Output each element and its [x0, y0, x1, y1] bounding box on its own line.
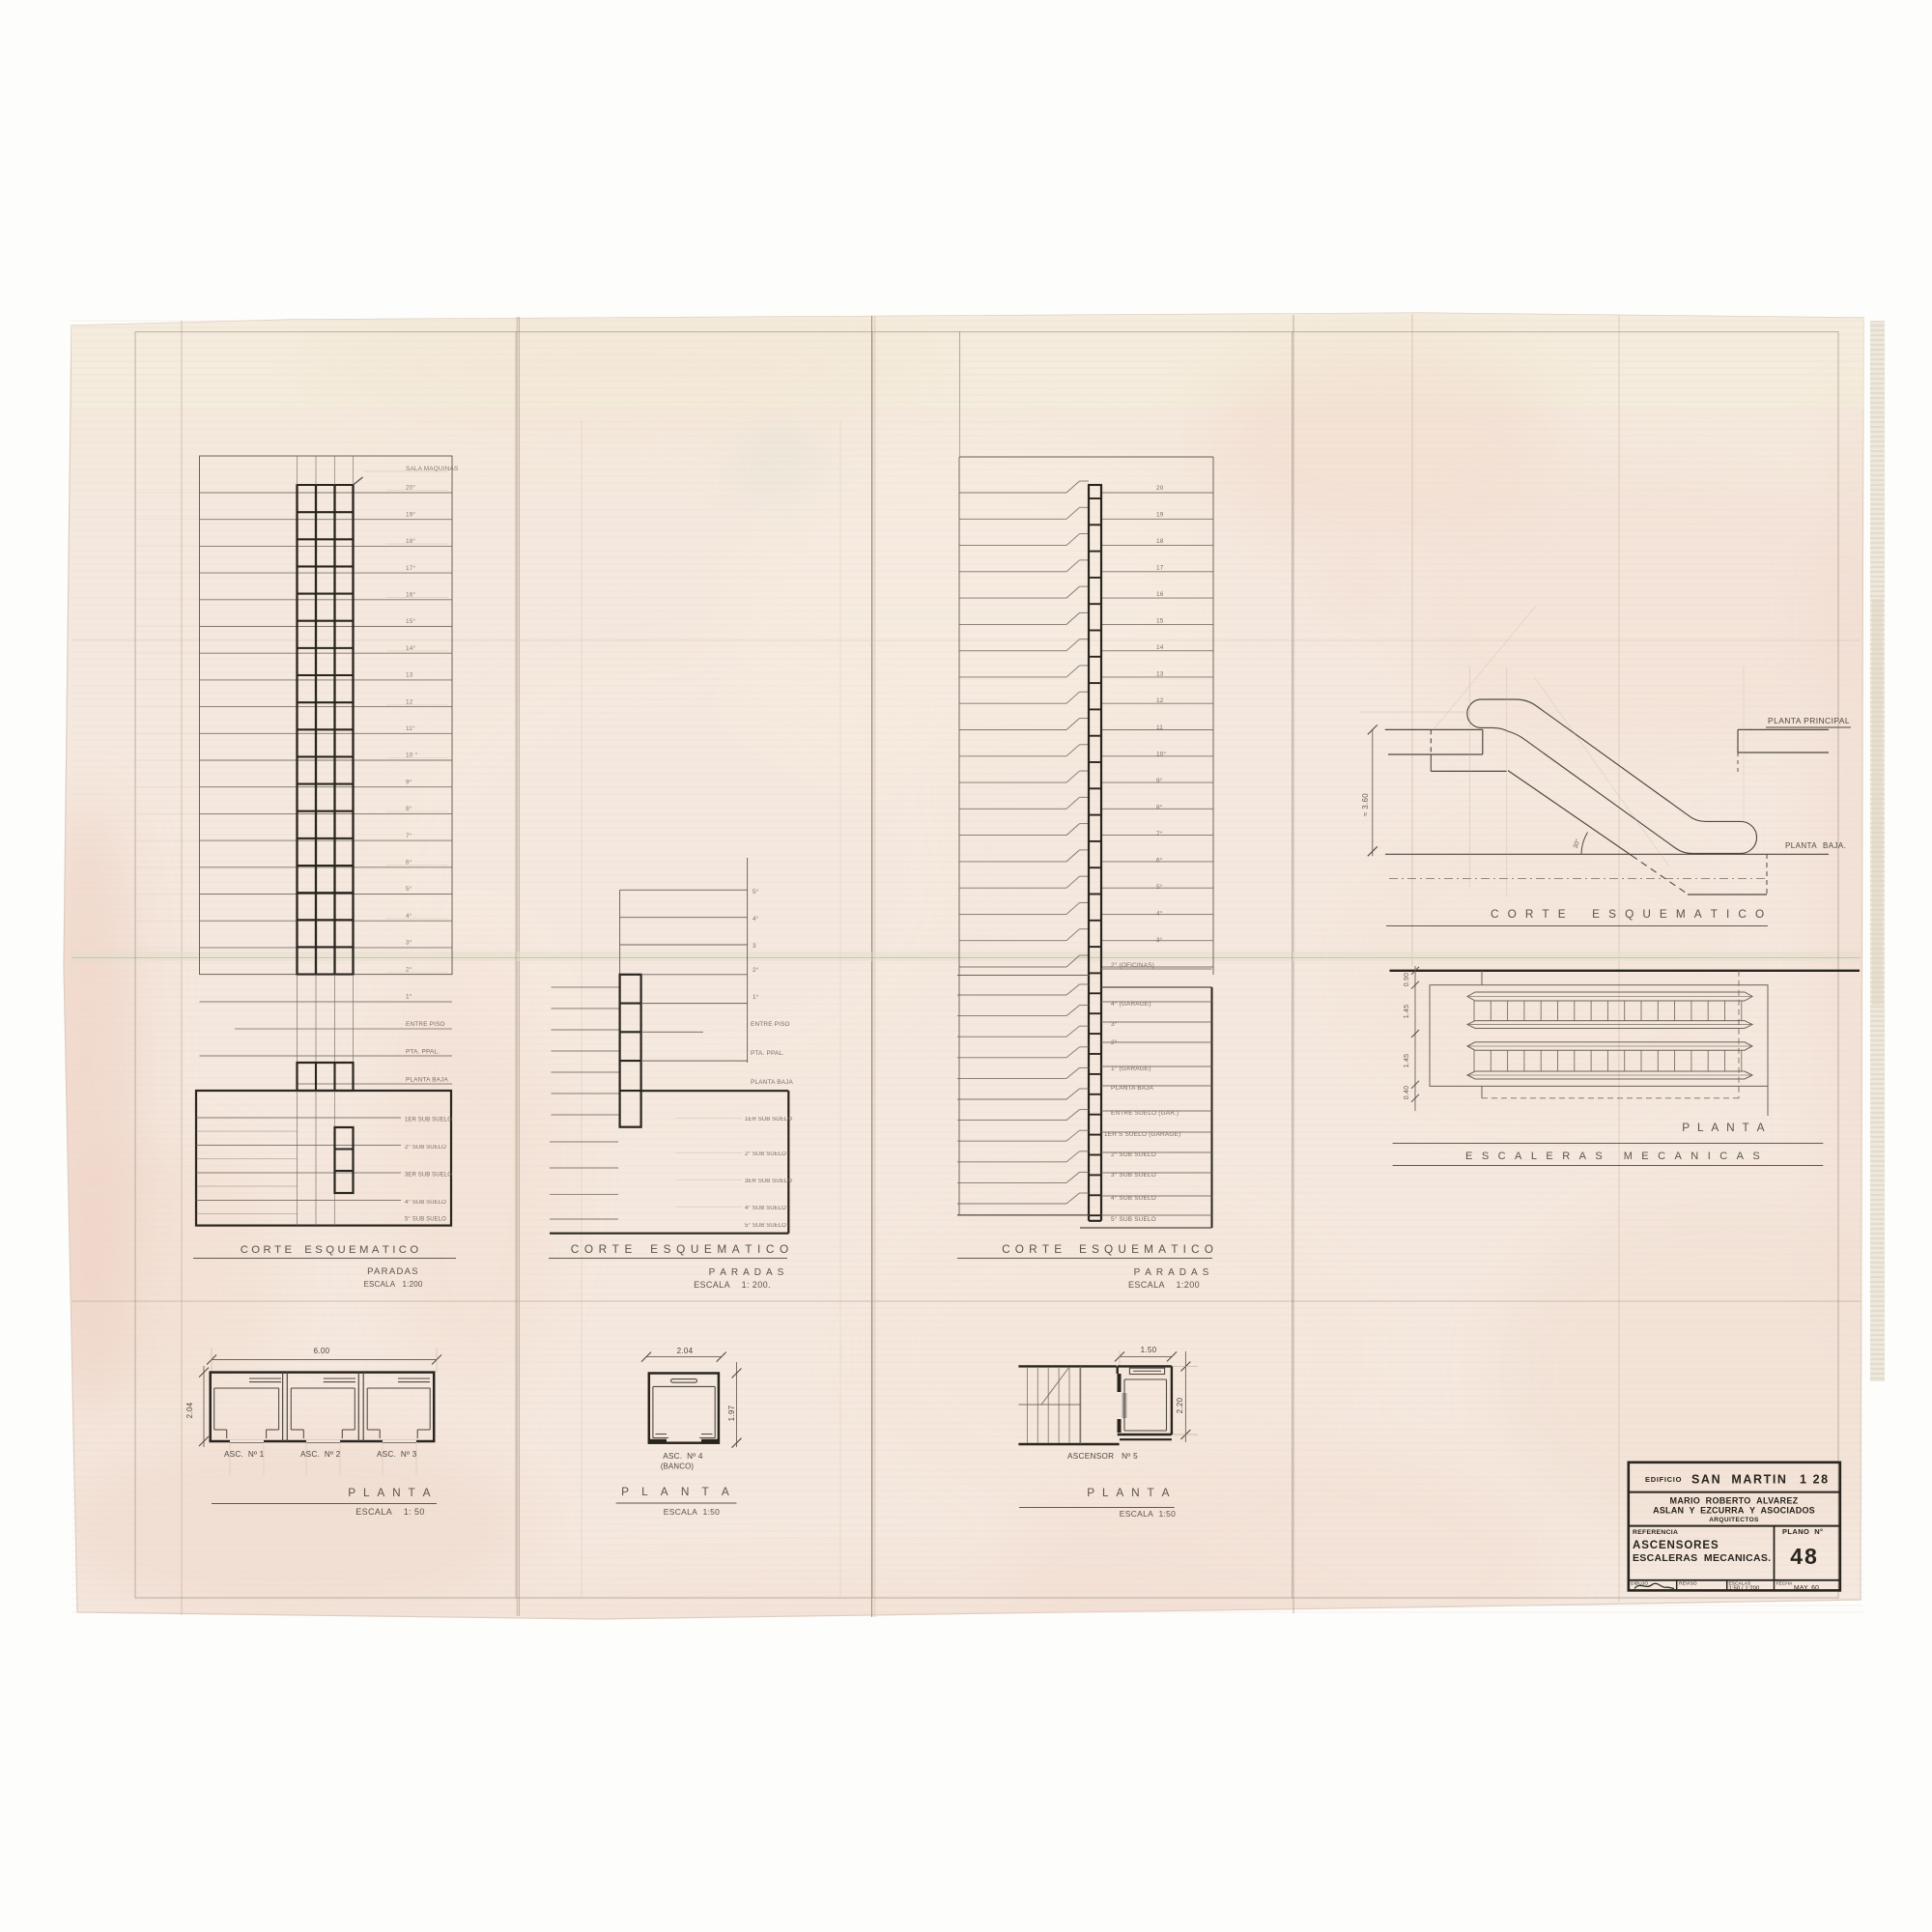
svg-text:13: 13: [406, 672, 413, 679]
svg-text:1ER SUB SUELO: 1ER SUB SUELO: [405, 1118, 452, 1123]
svg-text:12: 12: [1156, 697, 1164, 704]
svg-text:7°: 7°: [406, 832, 412, 839]
svg-text:17°: 17°: [406, 564, 416, 572]
svg-text:EDIFICIO: EDIFICIO: [1645, 1475, 1682, 1484]
svg-text:5°: 5°: [406, 885, 412, 893]
svg-text:18: 18: [1156, 538, 1164, 545]
svg-text:1.50: 1.50: [1141, 1346, 1157, 1354]
svg-text:1°: 1°: [406, 993, 412, 1001]
svg-text:ASC. Nº 1: ASC. Nº 1: [224, 1450, 265, 1459]
svg-text:11: 11: [1156, 724, 1163, 731]
svg-text:P A R A D A S: P A R A D A S: [709, 1267, 785, 1278]
svg-text:PTA. PPAL.: PTA. PPAL.: [751, 1050, 784, 1057]
svg-text:3ER SUB SUELO: 3ER SUB SUELO: [745, 1179, 792, 1184]
svg-text:9°: 9°: [406, 778, 412, 785]
svg-text:19°: 19°: [406, 510, 416, 518]
svg-text:E S C A L E R A S M E C A N: E S C A L E R A S M E C A N I C A S: [1465, 1151, 1763, 1162]
svg-text:16: 16: [1156, 591, 1164, 598]
svg-text:ESCALA 1:50: ESCALA 1:50: [1120, 1509, 1176, 1519]
svg-text:1ER S SUELO (GARAGE): 1ER S SUELO (GARAGE): [1104, 1131, 1180, 1138]
svg-text:20: 20: [1156, 485, 1164, 492]
svg-text:4°: 4°: [1156, 909, 1163, 917]
svg-text:2°: 2°: [1111, 1038, 1118, 1046]
svg-text:ASC. Nº 4: ASC. Nº 4: [663, 1452, 703, 1461]
svg-text:1.97: 1.97: [727, 1405, 736, 1421]
svg-text:6°: 6°: [1156, 856, 1163, 864]
svg-text:3: 3: [753, 943, 756, 950]
svg-text:17: 17: [1156, 565, 1164, 572]
svg-text:0.40: 0.40: [1404, 1086, 1410, 1099]
svg-text:2°: 2°: [753, 966, 759, 974]
svg-text:19: 19: [1156, 512, 1164, 519]
svg-text:3°: 3°: [1111, 1020, 1118, 1028]
svg-text:48: 48: [1790, 1544, 1819, 1569]
svg-text:2° SUB SUELO: 2° SUB SUELO: [405, 1145, 446, 1151]
svg-text:4° (GARAGE): 4° (GARAGE): [1111, 1000, 1151, 1008]
svg-text:PLANTA BAJA: PLANTA BAJA: [406, 1077, 449, 1084]
svg-text:5° SUB SUELO: 5° SUB SUELO: [1111, 1215, 1156, 1223]
svg-text:SAN MARTIN: SAN MARTIN: [1691, 1473, 1788, 1487]
svg-text:2.04: 2.04: [677, 1347, 694, 1355]
svg-text:BAJA.: BAJA.: [1823, 841, 1846, 850]
svg-text:ENTRE PISO: ENTRE PISO: [406, 1021, 445, 1028]
svg-text:REVISO: REVISO: [1679, 1581, 1697, 1587]
svg-text:1°: 1°: [753, 993, 759, 1001]
svg-text:1ER SUB SUELO: 1ER SUB SUELO: [745, 1117, 792, 1122]
svg-text:P L A N T A: P L A N T A: [1682, 1121, 1767, 1134]
svg-text:ESCALA 1:50: ESCALA 1:50: [664, 1507, 720, 1517]
svg-text:C O R T E E S Q U E M A T I: C O R T E E S Q U E M A T I C O: [241, 1244, 419, 1256]
svg-text:FECHA: FECHA: [1776, 1581, 1793, 1587]
svg-text:4° SUB SUELO: 4° SUB SUELO: [1111, 1194, 1156, 1202]
svg-text:4° SUB SUELO: 4° SUB SUELO: [745, 1206, 786, 1211]
svg-text:ENTRE SUELO (GAR.): ENTRE SUELO (GAR.): [1111, 1110, 1179, 1117]
svg-text:ARQUITECTOS: ARQUITECTOS: [1709, 1517, 1759, 1523]
svg-text:ASCENSOR Nº 5: ASCENSOR Nº 5: [1067, 1452, 1138, 1461]
svg-text:2° SUB SUELO: 2° SUB SUELO: [1111, 1151, 1156, 1158]
svg-text:4° SUB SUELO: 4° SUB SUELO: [405, 1200, 446, 1206]
svg-text:1 28: 1 28: [1800, 1473, 1830, 1487]
svg-text:ASCENSORES: ASCENSORES: [1633, 1540, 1719, 1551]
svg-text:PLANTA PRINCIPAL: PLANTA PRINCIPAL: [1768, 716, 1850, 725]
svg-text:PARADAS: PARADAS: [367, 1266, 419, 1277]
svg-text:3° SUB SUELO: 3° SUB SUELO: [1111, 1171, 1156, 1179]
svg-text:ASLAN Y EZCURRA Y ASOCIADO: ASLAN Y EZCURRA Y ASOCIADOS: [1653, 1506, 1815, 1516]
svg-text:1:50 / 1:200: 1:50 / 1:200: [1729, 1585, 1760, 1591]
svg-text:P A R A D A S: P A R A D A S: [1134, 1267, 1210, 1278]
svg-text:P L A N T A: P L A N T A: [348, 1486, 433, 1499]
svg-text:2.20: 2.20: [1176, 1397, 1184, 1413]
svg-text:MARIO ROBERTO ALVAREZ: MARIO ROBERTO ALVAREZ: [1670, 1496, 1799, 1506]
svg-text:5°: 5°: [1156, 883, 1163, 891]
svg-text:1.45: 1.45: [1404, 1005, 1410, 1018]
svg-text:PLANO N°: PLANO N°: [1782, 1527, 1823, 1536]
svg-text:5° SUB SUELO: 5° SUB SUELO: [745, 1223, 786, 1229]
svg-text:2° (OFICINAS): 2° (OFICINAS): [1111, 961, 1154, 969]
svg-text:3°: 3°: [1156, 936, 1163, 944]
svg-text:10°: 10°: [1156, 750, 1167, 757]
svg-text:15: 15: [1156, 618, 1164, 625]
svg-text:1.45: 1.45: [1404, 1054, 1410, 1067]
svg-text:ESCALA 1: 200.: ESCALA 1: 200.: [694, 1280, 771, 1290]
svg-text:2.04: 2.04: [185, 1402, 194, 1418]
svg-text:PLANTA BAJA: PLANTA BAJA: [751, 1079, 794, 1086]
svg-text:C O R T E E S Q U E M A T I: C O R T E E S Q U E M A T I C O: [1002, 1242, 1214, 1256]
svg-text:ENTRE PISO: ENTRE PISO: [751, 1021, 790, 1028]
svg-text:6.00: 6.00: [314, 1347, 330, 1355]
svg-text:ESCALA 1:200: ESCALA 1:200: [363, 1280, 422, 1289]
svg-text:3ER SUB SUELO: 3ER SUB SUELO: [405, 1173, 452, 1179]
svg-text:5° SUB SUELO: 5° SUB SUELO: [405, 1217, 446, 1223]
svg-text:5°: 5°: [753, 888, 759, 895]
svg-text:ASC. Nº 3: ASC. Nº 3: [377, 1450, 417, 1459]
svg-text:7°: 7°: [1156, 830, 1163, 838]
svg-text:P L A N T A: P L A N T A: [621, 1485, 731, 1498]
svg-text:PLANTA: PLANTA: [1785, 841, 1817, 850]
svg-text:ESCALA 1: 50: ESCALA 1: 50: [355, 1507, 425, 1517]
svg-text:14: 14: [1156, 644, 1164, 651]
svg-text:0.90: 0.90: [1404, 973, 1410, 986]
svg-text:13: 13: [1156, 671, 1164, 678]
svg-text:ASC. Nº 2: ASC. Nº 2: [300, 1450, 341, 1459]
svg-text:C O R T E E S Q U E M A T I: C O R T E E S Q U E M A T I C O: [1491, 907, 1767, 921]
svg-text:11°: 11°: [406, 724, 415, 732]
svg-text:9°: 9°: [1156, 777, 1163, 784]
svg-text:P L A N T A: P L A N T A: [1087, 1486, 1172, 1499]
svg-text:15°: 15°: [406, 617, 416, 625]
svg-text:PLANTA BAJA: PLANTA BAJA: [1111, 1085, 1154, 1092]
svg-text:MAY. 60: MAY. 60: [1794, 1584, 1819, 1591]
svg-text:(BANCO): (BANCO): [661, 1463, 695, 1471]
svg-text:1° (GARAGE): 1° (GARAGE): [1111, 1065, 1151, 1072]
svg-text:ESCALERAS MECANICAS.: ESCALERAS MECANICAS.: [1633, 1552, 1771, 1564]
svg-text:≈ 3.60: ≈ 3.60: [1361, 793, 1370, 816]
svg-text:8°: 8°: [1156, 803, 1163, 810]
svg-text:REFERENCIA: REFERENCIA: [1633, 1529, 1678, 1536]
svg-text:ESCALA 1:200: ESCALA 1:200: [1128, 1280, 1200, 1290]
svg-text:C O R T E E S Q U E M A T I: C O R T E E S Q U E M A T I C O: [571, 1242, 790, 1256]
svg-text:3°: 3°: [406, 939, 412, 947]
svg-text:4°: 4°: [753, 915, 759, 923]
svg-text:2° SUB SUELO: 2° SUB SUELO: [745, 1151, 786, 1157]
svg-text:PTA. PPAL.: PTA. PPAL.: [406, 1049, 440, 1056]
